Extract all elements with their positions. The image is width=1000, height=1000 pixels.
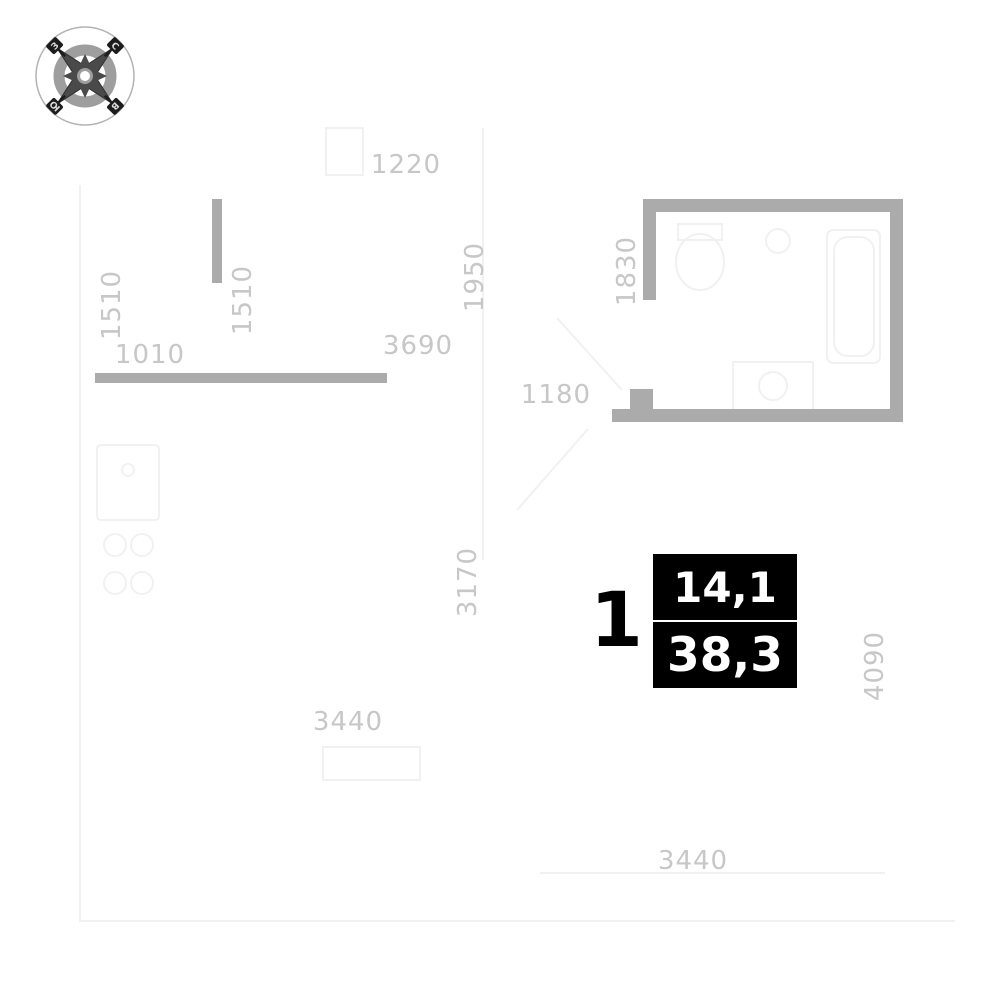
- dimension-3440-bottom: 3440: [658, 848, 728, 874]
- bed-outline: [323, 747, 420, 780]
- bathtub-inner: [834, 237, 874, 356]
- dimension-1950: 1950: [462, 242, 488, 312]
- total-area-value: 38,3: [653, 622, 797, 688]
- kitchen-sink: [97, 445, 159, 520]
- dimension-3170: 3170: [455, 547, 481, 617]
- kitchen-faucet: [122, 464, 134, 476]
- dimension-4090: 4090: [862, 631, 888, 701]
- wall-partition-vertical: [212, 199, 222, 283]
- stove-burner: [104, 572, 126, 594]
- toilet-bowl: [676, 234, 724, 290]
- vent-shaft: [326, 128, 363, 175]
- dimension-1510-mid: 1510: [230, 265, 256, 335]
- dimension-3440-left: 3440: [313, 709, 383, 735]
- dimension-1180: 1180: [521, 382, 591, 408]
- dimension-1830: 1830: [614, 236, 640, 306]
- bathroom-wall-right: [890, 199, 903, 422]
- bathroom-wall-left-upper: [643, 199, 656, 300]
- dimension-3690: 3690: [383, 333, 453, 359]
- unit-area-badge[interactable]: 14,1 38,3: [653, 554, 797, 688]
- compass-hub: [79, 70, 92, 83]
- stove-burner: [131, 572, 153, 594]
- dimension-1220: 1220: [371, 152, 441, 178]
- unit-number: 1: [590, 584, 630, 656]
- floor-plan: С Ю В З 1220 1510 1510 1010: [0, 0, 1000, 1000]
- toilet-tank: [678, 224, 722, 240]
- door-swing-entry: [517, 429, 588, 510]
- bathroom-wall-left-stub: [630, 389, 653, 409]
- wall-partition-horizontal: [95, 373, 387, 383]
- faint-outline-layer: [0, 0, 1000, 1000]
- living-area-value: 14,1: [653, 554, 797, 622]
- stove-burner: [104, 534, 126, 556]
- washing-machine-door: [759, 372, 787, 400]
- dimension-1010: 1010: [115, 342, 185, 368]
- dimension-1510-left: 1510: [99, 270, 125, 340]
- compass-rose-icon: С Ю В З: [24, 15, 146, 137]
- stove-burner: [131, 534, 153, 556]
- bath-sink: [766, 229, 790, 253]
- bathroom-wall-top: [643, 199, 903, 212]
- washing-machine: [733, 362, 813, 410]
- bathroom-wall-bottom: [612, 409, 903, 422]
